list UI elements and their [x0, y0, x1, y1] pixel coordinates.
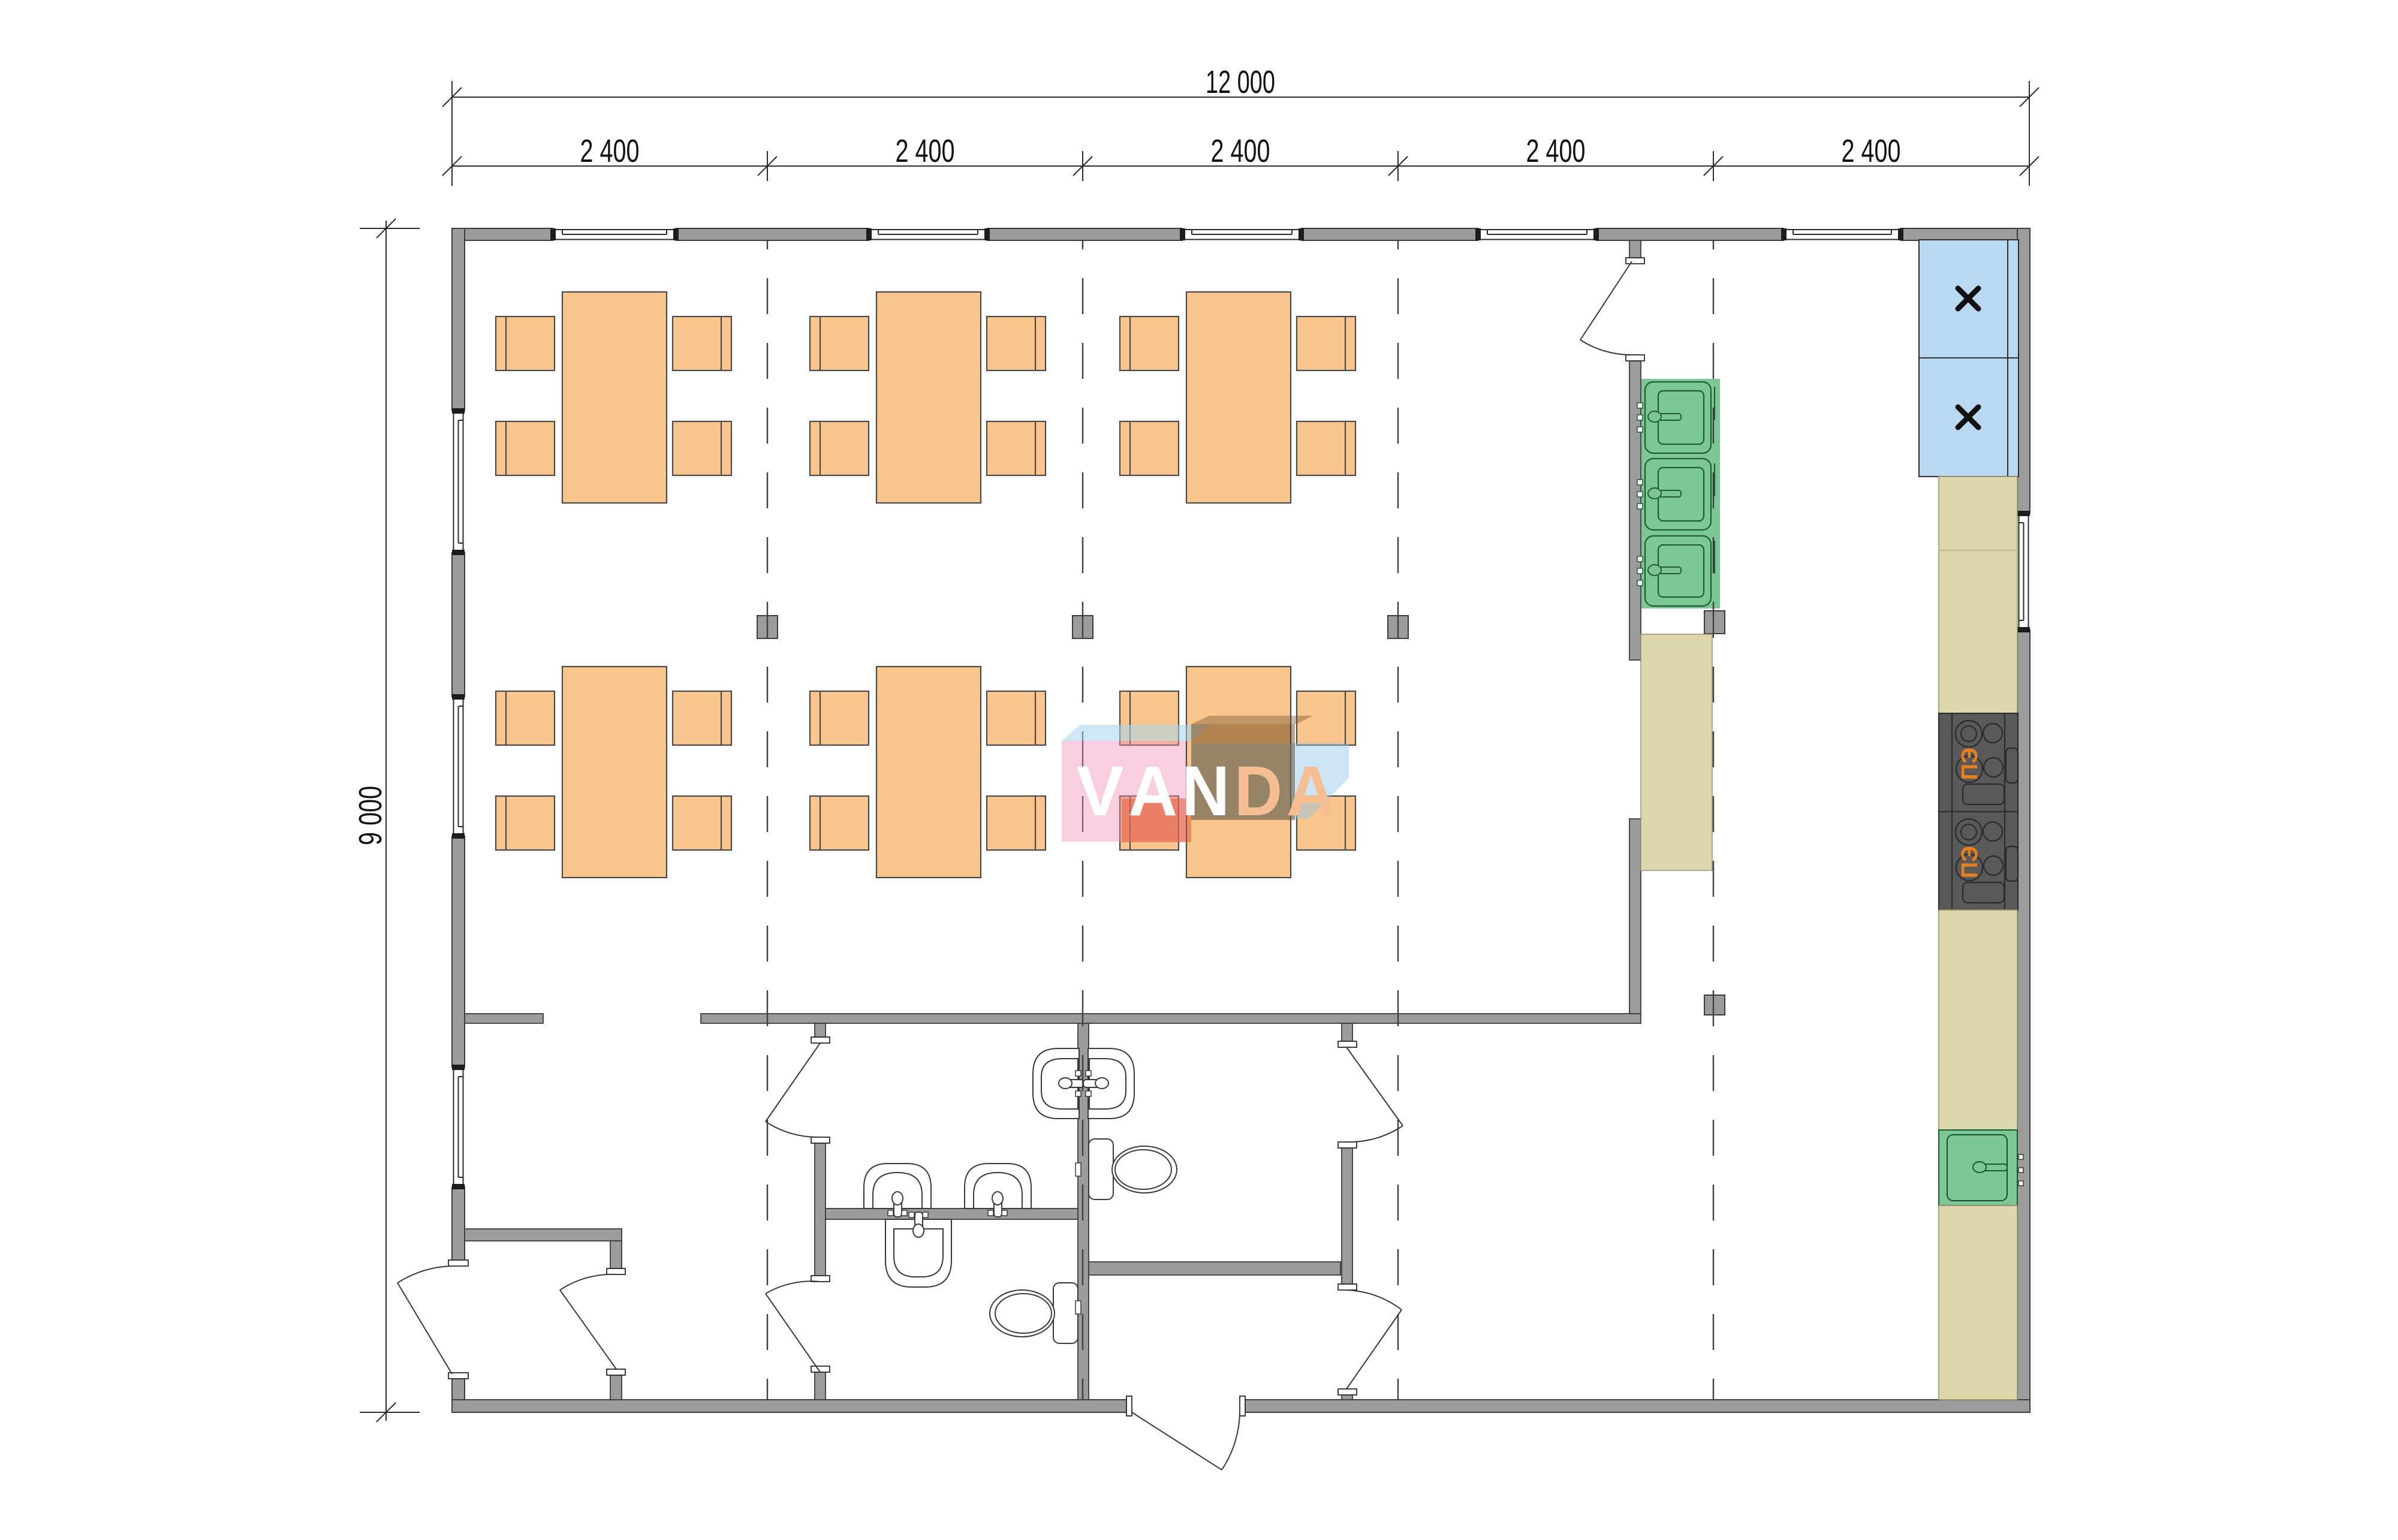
svg-text:A: A: [1287, 752, 1336, 831]
svg-text:2 400: 2 400: [1526, 133, 1586, 169]
svg-text:2 400: 2 400: [1211, 133, 1270, 169]
svg-text:2 400: 2 400: [1842, 133, 1901, 169]
svg-text:2 400: 2 400: [580, 133, 640, 169]
svg-text:N: N: [1182, 752, 1230, 831]
svg-text:2 400: 2 400: [896, 133, 955, 169]
svg-text:A: A: [1128, 752, 1177, 831]
svg-text:V: V: [1076, 752, 1124, 831]
svg-text:9 000: 9 000: [353, 786, 388, 845]
svg-text:D: D: [1234, 752, 1282, 831]
svg-text:12 000: 12 000: [1206, 64, 1275, 100]
